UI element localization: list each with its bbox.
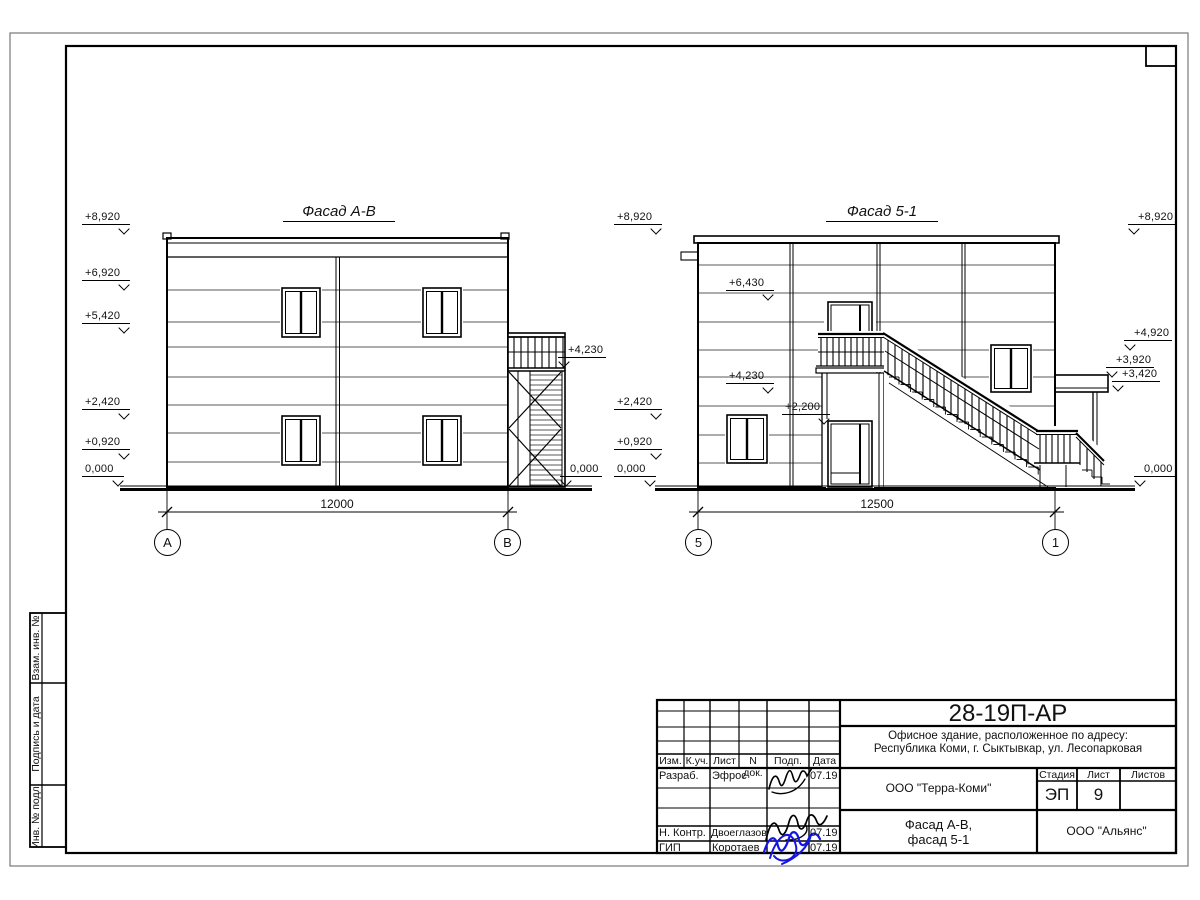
stage-label: Стадия [1037, 769, 1077, 781]
elevation-mark: +4,230 [558, 344, 606, 358]
contractor-org: ООО "Альянс" [1037, 824, 1176, 838]
stage-value: ЭП [1037, 785, 1077, 805]
elevation-mark: +0,920 [82, 436, 130, 450]
elevation-mark: +8,920 [614, 211, 662, 225]
elevation-mark: +4,230 [726, 370, 774, 384]
elevation-mark: 0,000 [560, 463, 602, 477]
strip-label-inv: Инв. № подл. [30, 781, 42, 851]
row-date: 07.19 [810, 842, 839, 854]
elevation-mark: +0,920 [614, 436, 662, 450]
drawing-sheet: Фасад А-В Фасад 5-1 +8,920 +6,920 +5,420… [0, 0, 1200, 900]
elevation-mark: +6,430 [726, 277, 774, 291]
client-org: ООО "Терра-Коми" [841, 781, 1036, 795]
project-address-line1: Офисное здание, расположенное по адресу: [843, 730, 1173, 743]
facade-51-title: Фасад 5-1 [826, 203, 938, 222]
row-name: Двоеглазов [711, 827, 769, 839]
sheets-label: Листов [1120, 769, 1176, 781]
col-data: Дата [809, 755, 840, 767]
row-name: Эфрос [712, 770, 766, 782]
elevation-mark: +8,920 [1128, 211, 1176, 225]
elevation-mark: +3,920 [1106, 354, 1154, 368]
axis-bubble-1: 1 [1042, 529, 1069, 556]
row-role: ГИП [659, 842, 709, 854]
col-kuch: К.уч. [684, 755, 710, 767]
elevation-mark: +4,920 [1124, 327, 1172, 341]
elevation-mark: 0,000 [614, 463, 656, 477]
col-izm: Изм. [657, 755, 684, 767]
sheet-title-line2: фасад 5-1 [841, 832, 1036, 847]
drawing-linework [0, 0, 1200, 900]
row-date: 07.19 [810, 770, 839, 782]
axis-bubble-5: 5 [685, 529, 712, 556]
row-role: Н. Контр. [659, 827, 709, 839]
elevation-mark: 0,000 [1134, 463, 1176, 477]
row-date: 07.19 [810, 827, 839, 839]
dimension-label: 12500 [847, 497, 907, 511]
project-code: 28-19П-АР [840, 701, 1176, 726]
sheet-title-line1: Фасад А-В, [841, 817, 1036, 832]
elevation-mark: +3,420 [1112, 368, 1160, 382]
row-name: Коротаев [712, 842, 766, 854]
elevation-mark: +8,920 [82, 211, 130, 225]
dimension-label: 12000 [307, 497, 367, 511]
elevation-mark: +6,920 [82, 267, 130, 281]
axis-bubble-a: А [154, 529, 181, 556]
elevation-mark: 0,000 [82, 463, 124, 477]
axis-bubble-b: В [494, 529, 521, 556]
col-podp: Подп. [767, 755, 809, 767]
sheet-number: 9 [1077, 785, 1120, 805]
col-list: Лист [710, 755, 739, 767]
facade-ab-linework [120, 233, 592, 529]
elevation-mark: +2,420 [82, 396, 130, 410]
facade-ab-title: Фасад А-В [283, 203, 395, 222]
strip-label-vzam: Взам. инв. № [30, 613, 42, 683]
strip-label-podpis: Подпись и дата [30, 684, 42, 784]
elevation-mark: +5,420 [82, 310, 130, 324]
sheet-label: Лист [1077, 769, 1120, 781]
elevation-mark: +2,200 [782, 401, 830, 415]
elevation-mark: +2,420 [614, 396, 662, 410]
row-role: Разраб. [659, 770, 709, 782]
project-address-line2: Республика Коми, г. Сыктывкар, ул. Лесоп… [843, 743, 1173, 756]
